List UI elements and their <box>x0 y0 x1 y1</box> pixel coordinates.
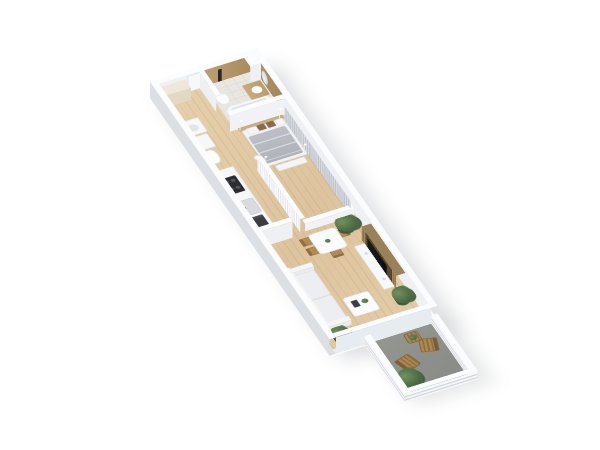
coffee-table-tray <box>350 300 360 308</box>
coffee-table-plant <box>360 298 369 304</box>
shower-column <box>218 68 222 82</box>
apartment-3d-plan <box>150 62 488 418</box>
floor-plan-stage <box>0 0 600 450</box>
balcony-table-plant <box>407 334 418 342</box>
